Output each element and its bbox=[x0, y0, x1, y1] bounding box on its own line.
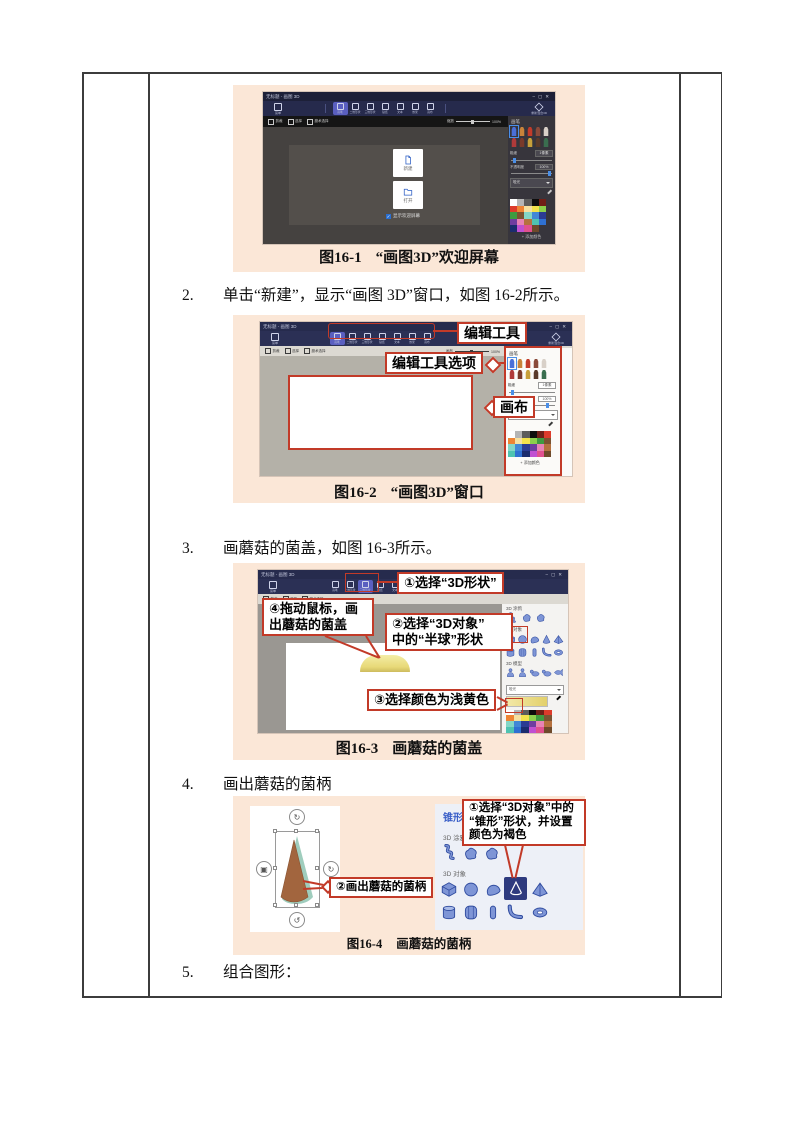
rotate-x-handle[interactable]: ▣ bbox=[256, 861, 272, 877]
shape-cone-icon bbox=[507, 880, 525, 897]
eyedropper-icon[interactable] bbox=[546, 190, 553, 197]
selection-handle[interactable] bbox=[315, 903, 319, 907]
step-5-text: 5.组合图形： bbox=[182, 960, 301, 982]
menu-button[interactable]: 菜单 bbox=[265, 333, 285, 345]
brush-panel: 画笔 粗细1像素 不透明度100% 哑光 + 添加颜色 bbox=[508, 116, 555, 244]
table-divider-left bbox=[148, 72, 150, 998]
shape-tube-icon[interactable] bbox=[506, 904, 524, 921]
selection-handle[interactable] bbox=[273, 903, 277, 907]
model-cat-icon[interactable] bbox=[541, 667, 552, 678]
figure-caption: 图16-4画蘑菇的菌柄 bbox=[233, 933, 585, 952]
cone-selection-card: ↻ ▣ ↻ ↺ bbox=[250, 806, 340, 932]
zoom-control[interactable]: 缩放100% bbox=[445, 116, 503, 127]
window-title: 无标题 - 画图 3D bbox=[266, 94, 300, 100]
palette-color[interactable] bbox=[510, 206, 517, 213]
toolbar-tool[interactable]: 文本 bbox=[393, 102, 408, 115]
window-title: 无标题 - 画图 3D bbox=[263, 324, 297, 330]
palette-color[interactable] bbox=[544, 727, 552, 733]
crop-button[interactable]: 剪裁 bbox=[265, 348, 280, 354]
callout-line bbox=[433, 330, 459, 332]
table-border-bottom bbox=[82, 996, 722, 998]
tool-3dshapes-highlight bbox=[345, 573, 379, 592]
tool-icon bbox=[412, 103, 419, 110]
palette-color[interactable] bbox=[524, 219, 531, 226]
figure-caption: 图16-2“画图3D”窗口 bbox=[233, 481, 585, 502]
palette-color[interactable] bbox=[539, 212, 546, 219]
yellow-color-highlight bbox=[505, 698, 523, 713]
callout-line bbox=[377, 581, 397, 583]
palette-color[interactable] bbox=[510, 219, 517, 226]
magic-select-icon bbox=[304, 348, 310, 354]
brush-icon[interactable] bbox=[511, 138, 517, 147]
toolbar-separator bbox=[445, 104, 446, 113]
eyedropper-icon[interactable] bbox=[555, 696, 562, 703]
menu-icon bbox=[269, 581, 277, 589]
brush-icon[interactable] bbox=[535, 138, 541, 147]
toolbar-highlight-box bbox=[328, 323, 435, 339]
panel-title: 画笔 bbox=[511, 119, 553, 125]
palette-color[interactable] bbox=[524, 212, 531, 219]
tool-icon bbox=[382, 103, 389, 110]
palette-color[interactable] bbox=[532, 212, 539, 219]
toolbar-tool[interactable]: 画笔 bbox=[333, 102, 348, 115]
palette-color[interactable] bbox=[532, 225, 539, 232]
selection-handle[interactable] bbox=[273, 866, 277, 870]
thickness-slider[interactable] bbox=[511, 160, 552, 161]
callout-select-3d-shapes: ①选择“3D形状” bbox=[397, 572, 504, 594]
palette-color[interactable] bbox=[517, 206, 524, 213]
toolbar-tool[interactable]: 画笔 bbox=[328, 580, 343, 593]
crop-icon bbox=[265, 348, 271, 354]
crop-button[interactable]: 剪裁 bbox=[268, 119, 283, 125]
step-4-text: 4.画出蘑菇的菌柄 bbox=[182, 772, 332, 794]
window-controls[interactable]: –▢✕ bbox=[549, 324, 569, 330]
thickness-label: 粗细 bbox=[510, 151, 517, 156]
brush-icon[interactable] bbox=[535, 127, 541, 136]
window-controls[interactable]: –▢✕ bbox=[545, 572, 565, 578]
selection-handle[interactable] bbox=[294, 903, 298, 907]
model-fish-icon[interactable] bbox=[553, 667, 564, 678]
open-folder-icon bbox=[403, 187, 413, 197]
doodle-blob-icon[interactable] bbox=[483, 845, 500, 861]
window-controls[interactable]: –▢✕ bbox=[532, 94, 552, 100]
palette-color[interactable] bbox=[539, 219, 546, 226]
tool-icon bbox=[397, 103, 404, 110]
model-dog-icon[interactable] bbox=[529, 667, 540, 678]
selection-handle[interactable] bbox=[315, 829, 319, 833]
palette-color[interactable] bbox=[529, 727, 537, 733]
crop-icon bbox=[268, 119, 274, 125]
rotate-icon: ↻ bbox=[294, 813, 301, 822]
palette-color[interactable] bbox=[539, 199, 546, 206]
doodle-blob-icon[interactable] bbox=[535, 612, 546, 623]
add-color-button[interactable]: + 添加颜色 bbox=[510, 234, 553, 240]
callout-canvas: 画布 bbox=[493, 396, 535, 418]
table-border-top bbox=[82, 72, 722, 74]
new-file-icon bbox=[403, 155, 413, 165]
toolbar-tool[interactable]: 画布 bbox=[423, 102, 438, 115]
shape-cube-icon[interactable] bbox=[440, 881, 458, 898]
tool-icon bbox=[352, 103, 359, 110]
model-man-icon[interactable] bbox=[505, 667, 516, 678]
material-dropdown[interactable]: 哑光 bbox=[510, 178, 553, 188]
welcome-dialog: 新建 打开 ✓显示欢迎屏幕 bbox=[289, 145, 480, 225]
shape-barrel-icon[interactable] bbox=[462, 904, 480, 921]
remix-3d-button[interactable]: 重新混合3D bbox=[548, 333, 564, 345]
palette-color[interactable] bbox=[532, 199, 539, 206]
drawing-canvas[interactable] bbox=[288, 375, 473, 450]
palette-color[interactable] bbox=[524, 199, 531, 206]
palette-color[interactable] bbox=[517, 212, 524, 219]
brush-icon[interactable] bbox=[527, 127, 533, 136]
shape-tube-icon[interactable] bbox=[541, 647, 552, 658]
open-button[interactable]: 打开 bbox=[393, 181, 423, 209]
shape-pill-icon[interactable] bbox=[529, 647, 540, 658]
shape-sphere-icon[interactable] bbox=[462, 881, 480, 898]
mushroom-cap-shape bbox=[360, 655, 410, 672]
opacity-value[interactable]: 100% bbox=[535, 164, 553, 170]
menu-button[interactable]: 菜单 bbox=[263, 581, 283, 593]
chevron-down-icon bbox=[546, 182, 550, 184]
select-icon bbox=[285, 348, 291, 354]
menu-icon bbox=[274, 103, 282, 111]
magic-select-icon bbox=[307, 119, 313, 125]
shape-donut-icon[interactable] bbox=[553, 647, 564, 658]
palette-color[interactable] bbox=[532, 206, 539, 213]
figure-16-1-block: 无标题 - 画图 3D –▢✕ 菜单 画笔二维形状三维形状贴纸文本效果画布 重新… bbox=[233, 85, 585, 272]
remix-3d-button[interactable]: 重新混合3D bbox=[531, 103, 547, 115]
callout-select-cone: ①选择“3D对象”中的“锥形”形状，并设置颜色为褐色 bbox=[462, 799, 586, 846]
table-border-right bbox=[721, 72, 723, 998]
rotate-icon: ↺ bbox=[294, 916, 301, 925]
shape-cone-icon[interactable] bbox=[541, 634, 552, 645]
paint3d-welcome-screenshot: 无标题 - 画图 3D –▢✕ 菜单 画笔二维形状三维形状贴纸文本效果画布 重新… bbox=[263, 92, 555, 244]
menu-icon bbox=[271, 333, 279, 341]
toolbar-tool[interactable]: 三维形状 bbox=[363, 102, 378, 115]
magic-select-button[interactable]: 魔术选择 bbox=[307, 119, 329, 125]
selection-handle[interactable] bbox=[315, 866, 319, 870]
rotate-y-handle[interactable]: ↻ bbox=[323, 861, 339, 877]
brush-icon[interactable] bbox=[519, 127, 525, 136]
palette-color[interactable] bbox=[532, 219, 539, 226]
brush-icon[interactable] bbox=[543, 127, 549, 136]
palette-color[interactable] bbox=[510, 199, 517, 206]
model-woman-icon[interactable] bbox=[517, 667, 528, 678]
zoom-slider[interactable] bbox=[456, 121, 490, 122]
callout-edit-tools: 编辑工具 bbox=[457, 322, 527, 344]
brush-icon[interactable] bbox=[519, 138, 525, 147]
tool-icon bbox=[367, 103, 374, 110]
doodle-squiggle-icon[interactable] bbox=[441, 844, 458, 860]
palette-color[interactable] bbox=[539, 206, 546, 213]
select-button[interactable]: 选择 bbox=[285, 348, 300, 354]
main-toolbar: 菜单 画笔二维形状三维形状贴纸文本效果画布 重新混合3D bbox=[263, 101, 555, 116]
palette-color[interactable] bbox=[514, 727, 522, 733]
palette-color[interactable] bbox=[517, 225, 524, 232]
palette-color[interactable] bbox=[506, 727, 514, 733]
rotate-z-handle[interactable]: ↻ bbox=[289, 809, 305, 825]
tool-icon bbox=[427, 103, 434, 110]
shape-cone-selected[interactable] bbox=[504, 877, 527, 900]
color-palette bbox=[510, 199, 553, 232]
magic-select-button[interactable]: 魔术选择 bbox=[304, 348, 326, 354]
palette-color[interactable] bbox=[536, 727, 544, 733]
selection-rectangle[interactable] bbox=[275, 831, 320, 908]
table-divider-right bbox=[679, 72, 681, 998]
cone-title: 锥形 bbox=[443, 809, 463, 824]
doodle-blob-icon[interactable] bbox=[521, 612, 532, 623]
material-dropdown[interactable]: 哑光 bbox=[506, 685, 564, 695]
selection-handle[interactable] bbox=[294, 829, 298, 833]
tool-tabs: 画笔二维形状三维形状贴纸文本效果画布 bbox=[333, 102, 438, 115]
palette-color[interactable] bbox=[510, 212, 517, 219]
rotate-icon: ↻ bbox=[328, 865, 335, 874]
show-welcome-checkbox[interactable]: ✓显示欢迎屏幕 bbox=[386, 213, 420, 219]
shape-cylinder-icon[interactable] bbox=[440, 904, 458, 921]
figure-caption: 图16-3画蘑菇的菌盖 bbox=[233, 737, 585, 758]
callout-edit-tool-options: 编辑工具选项 bbox=[385, 352, 483, 374]
callout-select-hemisphere: ②选择“3D对象”中的“半球”形状 bbox=[385, 613, 513, 651]
menu-button[interactable]: 菜单 bbox=[268, 103, 288, 115]
brush-icon[interactable] bbox=[543, 138, 549, 147]
titlebar: 无标题 - 画图 3D –▢✕ bbox=[263, 92, 555, 101]
figure-caption: 图16-1“画图3D”欢迎屏幕 bbox=[233, 246, 585, 267]
palette-color[interactable] bbox=[517, 199, 524, 206]
thickness-value[interactable]: 1像素 bbox=[535, 150, 553, 157]
depth-icon: ▣ bbox=[260, 865, 268, 874]
callout-select-light-yellow: ③选择颜色为浅黄色 bbox=[367, 689, 496, 711]
shape-hemisphere-icon[interactable] bbox=[529, 634, 540, 645]
step-3-text: 3.画蘑菇的菌盖，如图 16-3所示。 bbox=[182, 536, 441, 558]
rotate-handle-bottom[interactable]: ↺ bbox=[289, 912, 305, 928]
palette-color[interactable] bbox=[524, 206, 531, 213]
window-title: 无标题 - 画图 3D bbox=[261, 572, 295, 578]
shape-pill-icon[interactable] bbox=[484, 904, 502, 921]
palette-color[interactable] bbox=[521, 727, 529, 733]
toolbar-separator bbox=[325, 104, 326, 113]
palette-color[interactable] bbox=[510, 225, 517, 232]
tool-icon bbox=[332, 581, 339, 588]
select-button[interactable]: 选择 bbox=[288, 119, 303, 125]
palette-color[interactable] bbox=[517, 219, 524, 226]
brush-icon[interactable] bbox=[527, 138, 533, 147]
select-icon bbox=[288, 119, 294, 125]
shape-donut-icon[interactable] bbox=[531, 904, 549, 921]
palette-color[interactable] bbox=[524, 225, 531, 232]
new-button[interactable]: 新建 bbox=[393, 149, 423, 177]
tool-icon bbox=[337, 103, 344, 110]
toolbar-tool[interactable]: 二维形状 bbox=[348, 102, 363, 115]
toolbar-tool[interactable]: 效果 bbox=[408, 102, 423, 115]
callout-draw-stem: ②画出蘑菇的菌柄 bbox=[329, 877, 433, 898]
opacity-label: 不透明度 bbox=[510, 165, 524, 170]
shape-pyramid-icon[interactable] bbox=[531, 881, 549, 898]
opacity-slider[interactable] bbox=[511, 173, 552, 174]
doodle-blob-icon[interactable] bbox=[462, 845, 479, 861]
hemisphere-highlight bbox=[511, 626, 528, 643]
selection-handle[interactable] bbox=[273, 829, 277, 833]
shape-pyramid-icon[interactable] bbox=[553, 634, 564, 645]
callout-drag-mouse: ④拖动鼠标，画出蘑菇的菌盖 bbox=[262, 598, 374, 636]
chevron-down-icon bbox=[557, 689, 561, 691]
objects-section-label: 3D 对象 bbox=[443, 868, 466, 878]
toolbar-tool[interactable]: 贴纸 bbox=[378, 102, 393, 115]
brush-list bbox=[510, 127, 553, 147]
checkbox-check-icon: ✓ bbox=[386, 214, 391, 219]
document-page: 无标题 - 画图 3D –▢✕ 菜单 画笔二维形状三维形状贴纸文本效果画布 重新… bbox=[0, 0, 794, 1123]
shape-hemisphere-icon[interactable] bbox=[484, 881, 502, 898]
table-border-left bbox=[82, 72, 84, 998]
brush-icon[interactable] bbox=[511, 127, 517, 136]
shape-barrel-icon[interactable] bbox=[517, 647, 528, 658]
step-2-text: 2.单击“新建”，显示“画图 3D”窗口，如图 16-2所示。 bbox=[182, 283, 569, 305]
